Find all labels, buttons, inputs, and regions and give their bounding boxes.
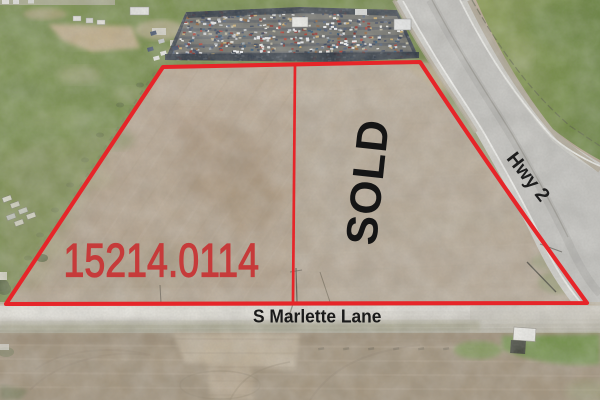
svg-text:15214.0114: 15214.0114 <box>64 234 259 287</box>
svg-text:S Marlette Lane: S Marlette Lane <box>253 306 381 327</box>
